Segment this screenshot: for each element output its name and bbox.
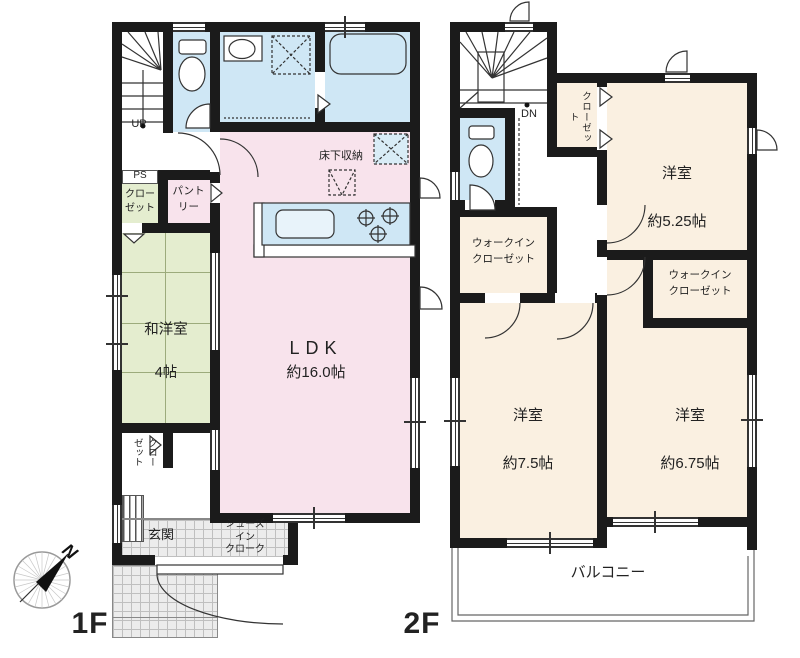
wall xyxy=(163,22,173,133)
door-opening xyxy=(597,87,607,150)
wall xyxy=(643,318,757,328)
window xyxy=(410,378,420,468)
door-opening xyxy=(597,205,607,240)
window xyxy=(450,378,460,466)
washitsu-name: 和洋室 xyxy=(122,320,210,342)
bedroom-675-name: 洋室 xyxy=(630,404,750,428)
window-tick xyxy=(654,511,656,533)
wall xyxy=(450,108,512,118)
porch-step-line xyxy=(113,617,217,618)
wall xyxy=(163,433,173,468)
wall xyxy=(597,240,607,257)
washitsu-size: 4帖 xyxy=(122,363,210,385)
sliding-door xyxy=(210,430,220,470)
door-opening xyxy=(210,183,220,203)
closet-ps-label: クロー ゼット xyxy=(122,188,158,216)
door-opening xyxy=(485,293,520,303)
sliding-door xyxy=(210,253,220,350)
wic-left-label: ウォークイン クローゼット xyxy=(461,236,546,268)
closet-2f-label: クローゼット xyxy=(565,86,591,148)
casement-arc xyxy=(666,51,687,72)
wall xyxy=(547,22,557,83)
stairs-up-label: UP xyxy=(124,117,154,131)
tatami-line xyxy=(122,272,210,273)
shoes-in-cloak-label: シューズ イン クローク xyxy=(206,519,284,557)
casement-arc xyxy=(420,287,442,309)
window xyxy=(173,22,205,32)
wall xyxy=(283,555,298,565)
casement-arc xyxy=(510,2,529,21)
door-opening xyxy=(597,257,607,295)
door-opening xyxy=(555,293,595,303)
washroom xyxy=(220,32,315,122)
porch-floor xyxy=(112,565,218,638)
window xyxy=(747,128,757,154)
window-tick xyxy=(549,532,551,554)
wall xyxy=(210,22,220,132)
wic-right-label: ウォークイン クローゼット xyxy=(654,268,746,300)
wall xyxy=(597,150,607,207)
window xyxy=(505,22,533,32)
bedroom-525-size: 約5.25帖 xyxy=(617,210,737,234)
pantry-label: パント リー xyxy=(167,184,210,216)
wall xyxy=(547,207,557,303)
balcony-outline xyxy=(452,548,754,621)
closet-hall-label: クローゼット xyxy=(128,436,158,468)
toilet-room-1f xyxy=(173,32,210,133)
ldk-room xyxy=(220,132,410,513)
wall xyxy=(112,555,155,565)
wall xyxy=(112,22,420,32)
ldk-label: LDK xyxy=(256,337,376,360)
bedroom-525-name: 洋室 xyxy=(617,162,737,186)
bedroom-75-name: 洋室 xyxy=(468,404,588,428)
balcony-label: バルコニー xyxy=(553,563,663,583)
stairs-down-label: DN xyxy=(514,107,544,121)
wall xyxy=(450,22,557,32)
window xyxy=(112,275,122,370)
wall xyxy=(505,108,515,210)
floor-plan: UP PS クロー ゼット パント リー 床下収納 LDK 約16.0帖 和洋室… xyxy=(0,0,800,658)
floor2-label: 2F xyxy=(394,604,450,643)
wall xyxy=(597,295,607,548)
wall xyxy=(547,73,757,83)
wall xyxy=(210,122,420,132)
bedroom-675-size: 約6.75帖 xyxy=(630,452,750,476)
casement-arc xyxy=(420,178,440,198)
washitsu-label: 和洋室 4帖 xyxy=(122,298,210,407)
door-opening xyxy=(315,72,325,108)
window-tick xyxy=(106,295,128,297)
window-tick xyxy=(344,16,346,38)
wall xyxy=(315,32,325,72)
casement-arc xyxy=(757,130,777,150)
bathroom xyxy=(325,32,410,122)
door-opening xyxy=(122,223,142,233)
bedroom-75-size: 約7.5帖 xyxy=(468,452,588,476)
ldk-size-label: 約16.0帖 xyxy=(256,363,376,383)
wall xyxy=(597,73,607,87)
window xyxy=(450,172,460,200)
bedroom-525-label: 洋室 約5.25帖 xyxy=(617,138,737,258)
underfloor-storage-label: 床下収納 xyxy=(313,149,369,163)
genkan-step-line xyxy=(122,518,210,520)
wall xyxy=(450,22,460,548)
window-tick xyxy=(444,420,466,422)
window xyxy=(112,505,122,543)
door-opening xyxy=(465,200,495,210)
compass-icon: N xyxy=(4,540,94,630)
wall xyxy=(643,250,653,328)
wall xyxy=(547,82,557,157)
wall xyxy=(112,423,210,433)
bedroom-675-label: 洋室 約6.75帖 xyxy=(630,380,750,500)
window-tick xyxy=(313,507,315,529)
window-tick xyxy=(404,421,426,423)
bedroom-75-label: 洋室 約7.5帖 xyxy=(468,380,588,500)
window xyxy=(665,73,690,83)
toilet-room-2f xyxy=(460,118,505,200)
genkan-label: 玄関 xyxy=(138,527,184,544)
pipe-space-label: PS xyxy=(122,170,158,181)
